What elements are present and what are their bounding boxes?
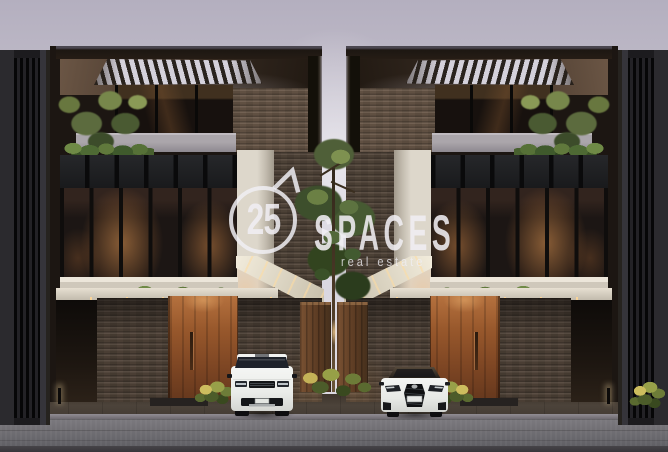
roof-fascia (346, 46, 612, 59)
awning-seams (431, 155, 608, 188)
middle-floor-glazing (60, 188, 237, 285)
window-awning-band (431, 155, 608, 188)
architectural-render: 25 SPACES real estate (0, 0, 668, 452)
garage-recess (571, 300, 612, 402)
vertical-slats (14, 58, 40, 418)
planter-uplight (330, 320, 338, 360)
center-tree-foliage-front (290, 140, 382, 308)
vertical-slats (628, 58, 654, 418)
window-awning-band (60, 155, 237, 188)
awning-seams (60, 155, 237, 188)
suv-illustration (225, 352, 299, 418)
middle-floor-glazing (431, 188, 608, 285)
door-handle (475, 332, 478, 370)
white-suv (225, 352, 299, 418)
roof-fascia (56, 46, 322, 59)
door-handle (190, 332, 193, 370)
bollard-light (58, 388, 61, 404)
sedan-illustration (379, 366, 450, 418)
center-ferns (294, 358, 376, 400)
white-sedan (379, 366, 450, 418)
bollard-light (607, 388, 610, 404)
garage-recess (56, 300, 97, 402)
far-right-bush (628, 368, 668, 412)
